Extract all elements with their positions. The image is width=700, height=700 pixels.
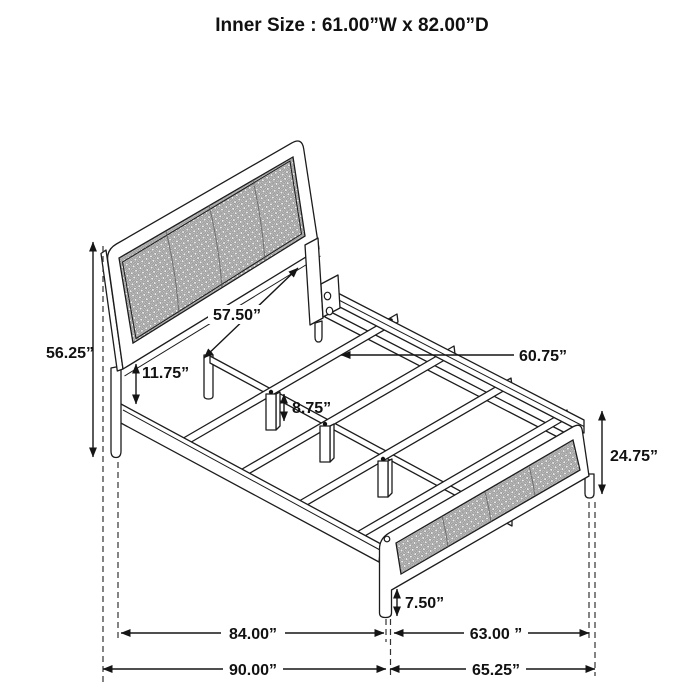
dim-label-footboard-leg: 7.50” <box>405 595 444 612</box>
footboard-bolt <box>384 536 390 542</box>
headboard-right-leg <box>315 321 322 342</box>
headboard-right-post <box>305 238 323 325</box>
bracket-hole <box>326 307 332 315</box>
bracket-hole <box>324 292 330 300</box>
slat-leg <box>320 426 330 462</box>
dim-label-headboard-width: 57.50” <box>213 307 261 324</box>
dim-label-footboard-span: 63.00 ” <box>470 626 522 643</box>
slat-leg <box>378 461 388 497</box>
dim-label-overall-length: 90.00” <box>229 662 277 679</box>
dim-label-overall-width: 65.25” <box>472 662 520 679</box>
slat-leg <box>266 394 276 430</box>
footboard <box>380 425 595 617</box>
leg-bolt <box>269 390 273 394</box>
diagram-canvas: 56.25” 57.50” 11.75” 8.75” 60.75” 24.75”… <box>0 0 700 700</box>
dim-label-rail-gap: 11.75” <box>142 365 189 382</box>
dim-label-slat-length: 60.75” <box>519 348 567 365</box>
leg-bolt <box>323 422 327 426</box>
headboard-left-leg <box>111 366 121 458</box>
dim-label-slat-leg: 8.75” <box>292 400 331 417</box>
leg-bolt <box>381 457 385 461</box>
dim-label-inner-length: 84.00” <box>229 626 277 643</box>
diagram-title: Inner Size : 61.00”W x 82.00”D <box>215 15 489 36</box>
bed-dimension-diagram: 56.25” 57.50” 11.75” 8.75” 60.75” 24.75”… <box>0 0 700 700</box>
dim-label-footboard-height: 24.75” <box>610 448 658 465</box>
dim-label-headboard-height: 56.25” <box>46 345 94 362</box>
